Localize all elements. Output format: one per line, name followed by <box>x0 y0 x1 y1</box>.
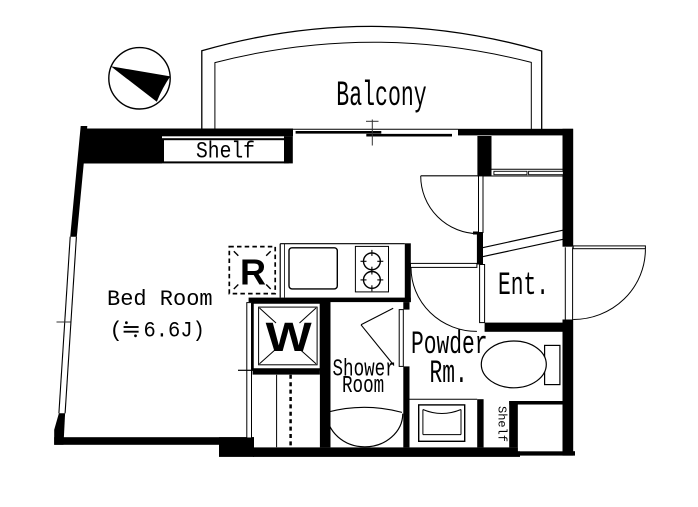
svg-text:R: R <box>240 252 266 293</box>
svg-text:Balcony: Balcony <box>336 76 426 116</box>
svg-text:Shelf: Shelf <box>196 139 255 165</box>
svg-text:(: ( <box>110 319 123 344</box>
svg-text:Bed Room: Bed Room <box>107 287 213 312</box>
svg-text:Rm.: Rm. <box>430 356 468 393</box>
svg-text:Room: Room <box>342 373 384 400</box>
svg-text:W: W <box>266 314 313 360</box>
svg-text:6.6J): 6.6J) <box>144 319 205 344</box>
svg-text:Shelf: Shelf <box>495 406 509 442</box>
svg-text:Ent.: Ent. <box>498 268 549 305</box>
